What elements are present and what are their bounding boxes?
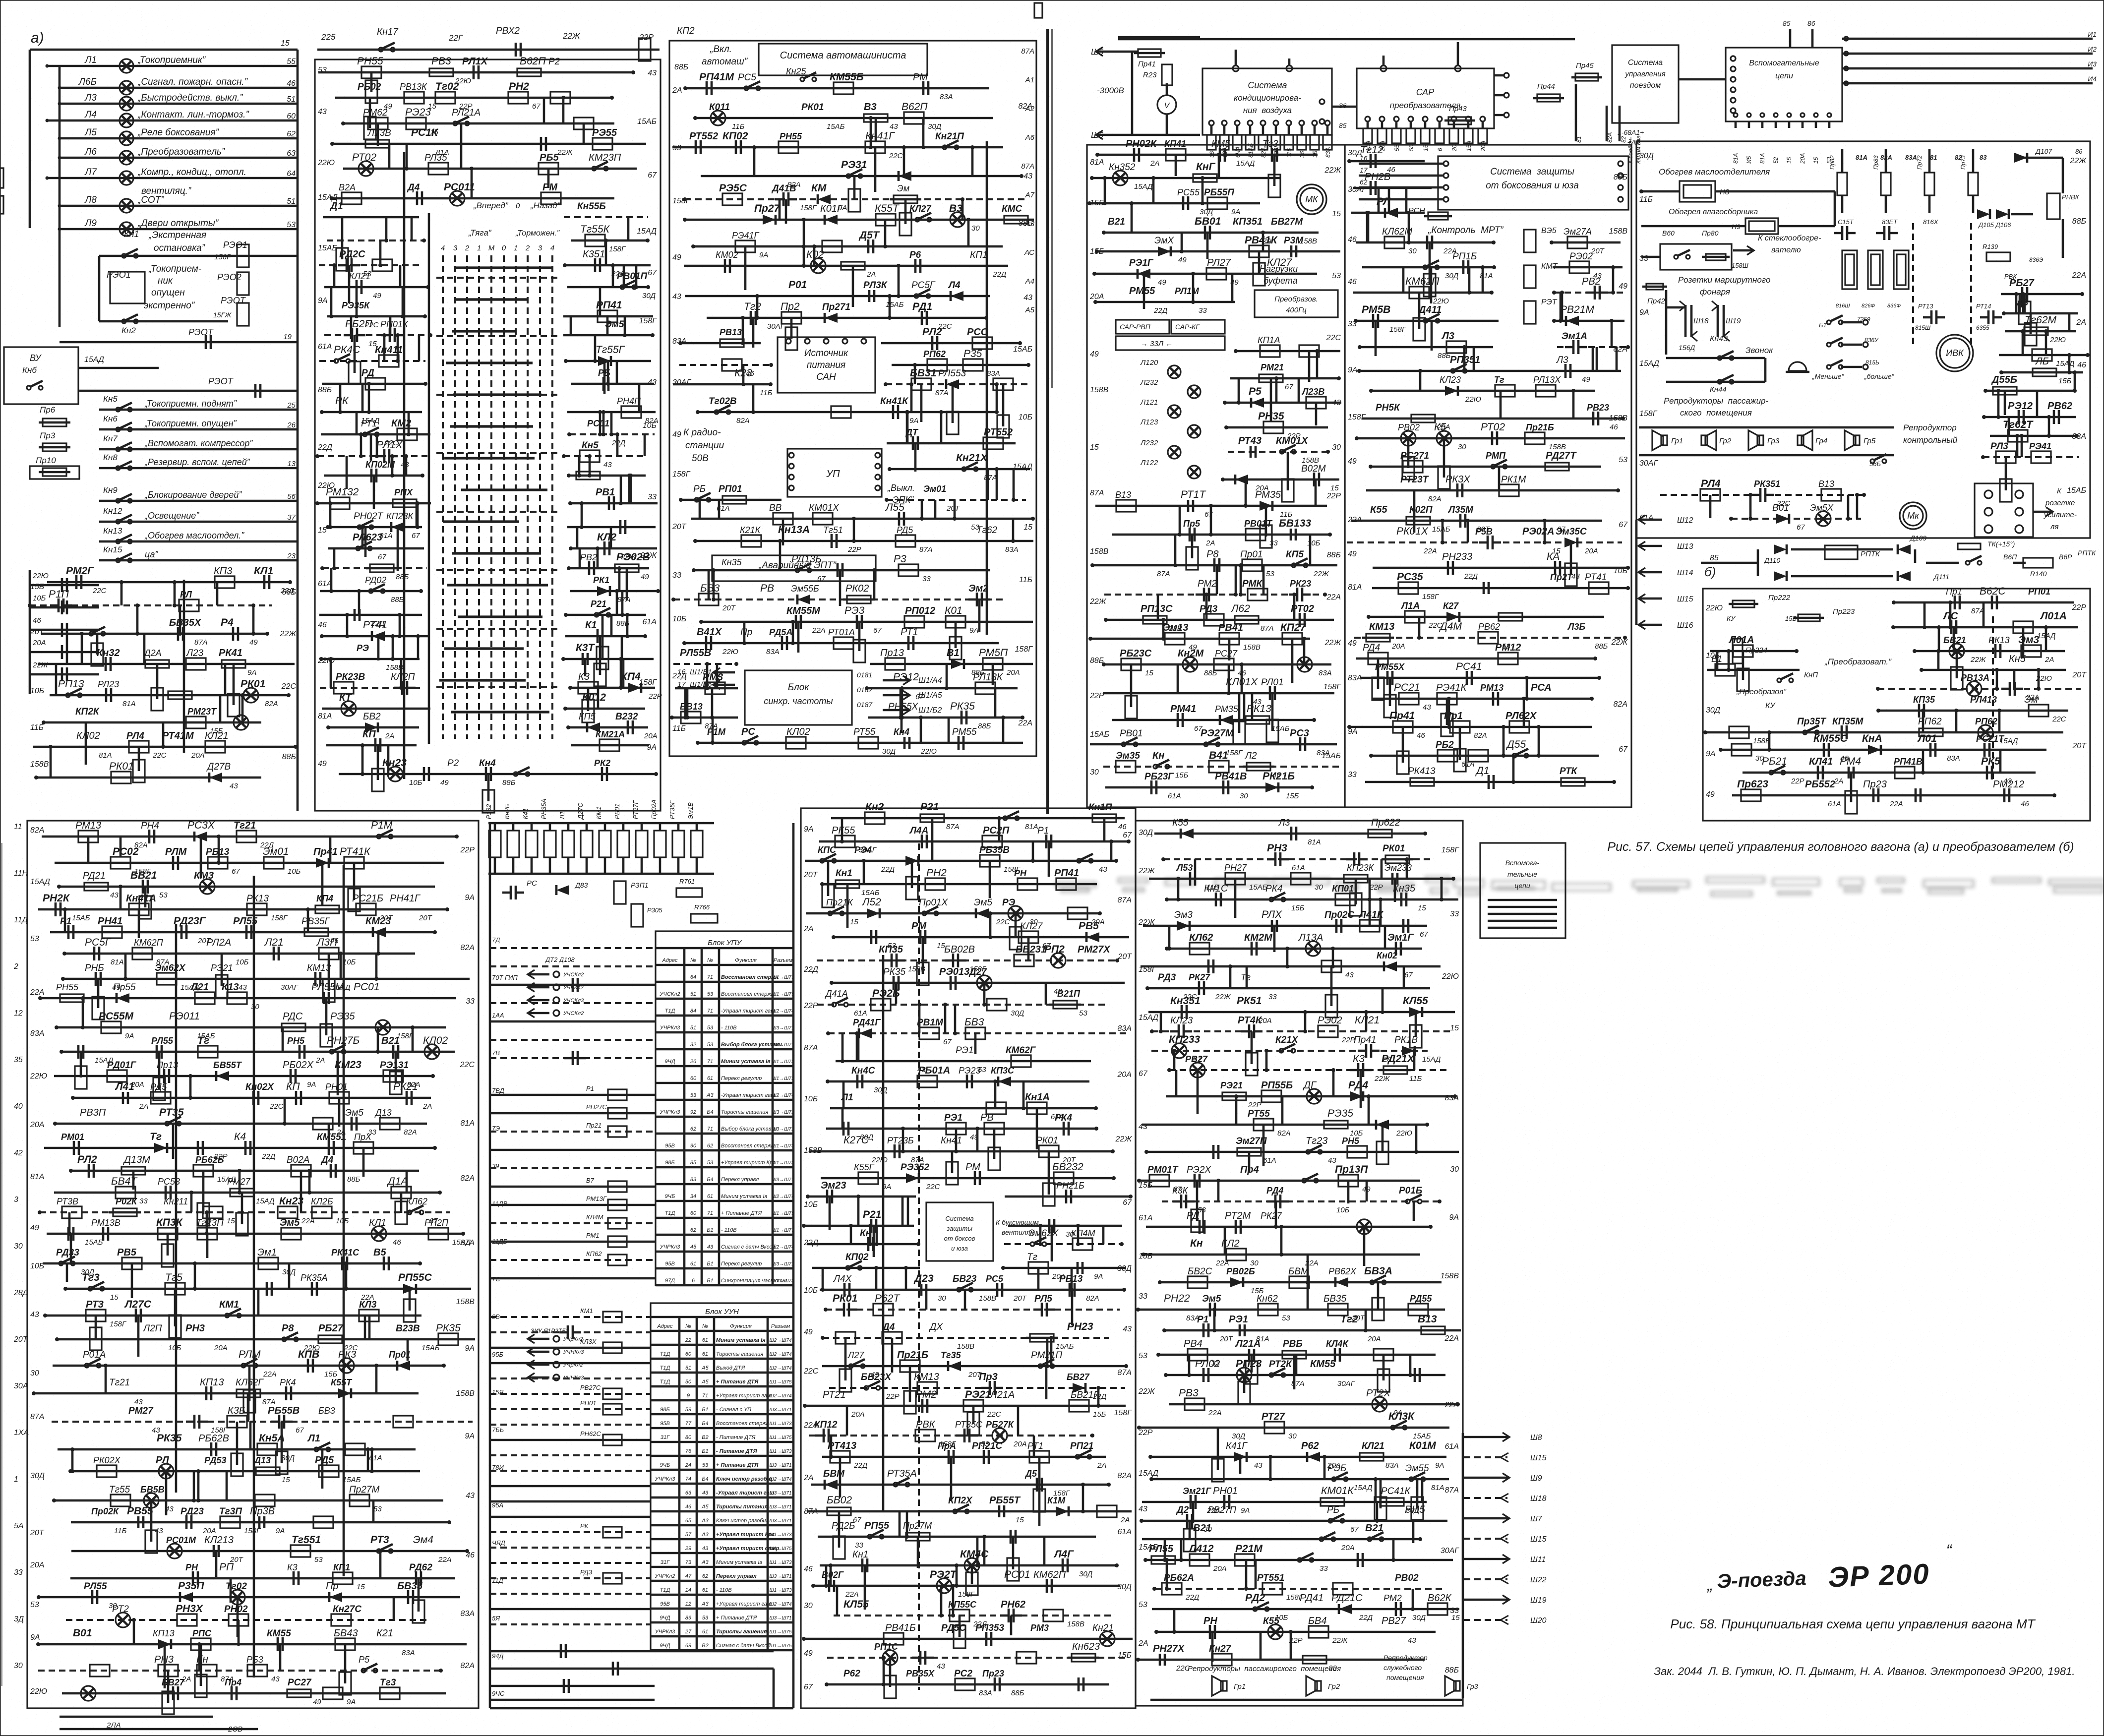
svg-text:Тг21: Тг21: [234, 820, 256, 831]
svg-text:22Д: 22Д: [317, 443, 332, 452]
svg-text:РК4: РК4: [1055, 1113, 1072, 1123]
svg-text:БВ35: БВ35: [1323, 1294, 1347, 1304]
svg-text:2А: 2А: [1150, 159, 1159, 168]
svg-text:30АГ: 30АГ: [672, 378, 691, 387]
svg-text:9А: 9А: [969, 626, 978, 635]
svg-text:РП1С: РП1С: [874, 1642, 899, 1652]
svg-text:РТ55: РТ55: [853, 727, 876, 737]
svg-text:РЛ3: РЛ3: [1990, 441, 2008, 452]
svg-text:81А: 81А: [1025, 823, 1038, 831]
svg-text:15АД: 15АД: [1134, 182, 1153, 191]
svg-text:Пр6: Пр6: [40, 405, 56, 415]
svg-text:Р01А: Р01А: [83, 1350, 106, 1360]
svg-text:УЧРКл3: УЧРКл3: [655, 1629, 675, 1635]
svg-text:Эм4: Эм4: [413, 1534, 433, 1546]
svg-text:0187: 0187: [857, 701, 873, 709]
svg-text:„Компр., кондиц., отопл.: „Компр., кондиц., отопл.: [137, 167, 246, 178]
svg-text:РВ4: РВ4: [1184, 1338, 1202, 1349]
svg-text:20А: 20А: [1391, 642, 1405, 651]
svg-text:Д27: Д27: [968, 967, 987, 977]
svg-text:Л5: Л5: [84, 127, 97, 138]
svg-text:158В: 158В: [1243, 643, 1261, 652]
svg-text:15АБ: 15АБ: [1090, 730, 1109, 739]
svg-text:КЛ62: КЛ62: [406, 1197, 427, 1206]
svg-text:60: 60: [685, 1351, 692, 1357]
svg-text:20Т: 20Т: [30, 1529, 45, 1537]
svg-text:Л1: Л1: [84, 55, 97, 65]
svg-text:РС55М: РС55М: [99, 1011, 134, 1022]
svg-text:Эм5: Эм5: [1202, 1294, 1221, 1304]
svg-text:1ХА: 1ХА: [14, 1429, 29, 1437]
svg-text:Л13А: Л13А: [1298, 932, 1323, 943]
svg-text:РК01: РК01: [109, 761, 134, 772]
svg-text:К01М: К01М: [1409, 1440, 1436, 1451]
svg-text:В62П: В62П: [520, 56, 546, 67]
svg-text:РЭ02: РЭ02: [1569, 251, 1593, 262]
svg-text:88Б: 88Б: [1011, 1689, 1024, 1697]
svg-text:83А: 83А: [987, 369, 1000, 378]
svg-text:УЧРКл3: УЧРКл3: [660, 1244, 680, 1250]
svg-text:К3: К3: [578, 671, 590, 682]
svg-text:Кн41А: Кн41А: [126, 893, 156, 904]
svg-text:+Управл тирист гаш: +Управл тирист гаш: [716, 1601, 772, 1607]
svg-text:53: 53: [314, 1556, 323, 1564]
svg-text:55: 55: [287, 58, 296, 66]
svg-text:22С: 22С: [996, 918, 1010, 926]
svg-text:49: 49: [249, 638, 258, 647]
svg-text:Ш15: Ш15: [1677, 595, 1693, 603]
svg-text:20Т: 20Т: [13, 1335, 28, 1344]
svg-text:20А: 20А: [1213, 1564, 1227, 1573]
svg-text:экстренно”: экстренно”: [144, 300, 195, 311]
svg-text:ВУ: ВУ: [30, 353, 42, 363]
svg-text:РМ2: РМ2: [1383, 1593, 1402, 1603]
svg-text:РК4: РК4: [1265, 884, 1282, 894]
svg-text:Л3Б: Л3Б: [1567, 622, 1585, 632]
svg-text:Кн: Кн: [1152, 750, 1164, 761]
svg-text:70Т ГИП: 70Т ГИП: [492, 974, 518, 981]
svg-text:Пр73: Пр73: [1960, 155, 1967, 170]
svg-text:РТ3В: РТ3В: [57, 1197, 78, 1206]
svg-text:Л4Г: Л4Г: [1053, 1549, 1074, 1560]
svg-text:КЛ23: КЛ23: [1440, 375, 1461, 385]
svg-text:РК27: РК27: [1261, 1211, 1282, 1221]
svg-text:розетке: розетке: [2045, 499, 2075, 507]
svg-text:РС41: РС41: [1456, 661, 1482, 672]
svg-text:Кн2Б: Кн2Б: [503, 804, 511, 819]
svg-text:Тг12: Тг12: [1360, 144, 1383, 156]
svg-text:82А: 82А: [1118, 1472, 1132, 1480]
svg-text:Мк: Мк: [1907, 511, 1920, 521]
svg-text:РМ: РМ: [913, 72, 928, 83]
svg-text:РЭ35: РЭ35: [1327, 1108, 1353, 1119]
svg-text:ПрХ: ПрХ: [354, 1132, 372, 1142]
svg-text:15ГЖ: 15ГЖ: [213, 311, 232, 319]
svg-text:РК3Х: РК3Х: [1445, 474, 1470, 485]
svg-text:Пр82: Пр82: [1829, 155, 1836, 170]
svg-text:Ш3→Ш71: Ш3→Ш71: [769, 1616, 791, 1621]
svg-text:Т1Д: Т1Д: [660, 1365, 670, 1371]
svg-text:158В: 158В: [1441, 1272, 1459, 1280]
svg-text:РН02Т: РН02Т: [354, 511, 384, 522]
svg-text:А5: А5: [701, 1504, 709, 1510]
svg-text:87А: 87А: [617, 596, 631, 604]
svg-text:РП: РП: [219, 1561, 234, 1573]
svg-text:РВ13К: РВ13К: [400, 82, 427, 92]
svg-text:Тг3: Тг3: [380, 1677, 396, 1688]
svg-text:Кн352: Кн352: [1109, 162, 1136, 173]
svg-text:10Б: 10Б: [236, 958, 249, 966]
svg-text:РТ552: РТ552: [984, 427, 1013, 438]
svg-text:73: 73: [685, 1559, 692, 1565]
svg-text:156Д: 156Д: [1679, 344, 1695, 352]
svg-text:К55Т: К55Т: [875, 203, 900, 214]
svg-text:62: 62: [690, 1126, 696, 1132]
svg-text:61: 61: [702, 1629, 708, 1635]
svg-text:УЧСКл2: УЧСКл2: [563, 972, 584, 978]
svg-text:РС55: РС55: [1177, 187, 1200, 197]
svg-text:49: 49: [30, 1224, 39, 1232]
svg-text:+Управл тирист Крс: +Управл тирист Крс: [716, 1532, 775, 1538]
svg-text:Система автомашиниста: Система автомашиниста: [780, 50, 906, 61]
svg-text:87А: 87А: [30, 1413, 44, 1421]
svg-text:РД: РД: [361, 368, 374, 378]
svg-text:95В: 95В: [665, 1261, 675, 1267]
svg-text:КПС: КПС: [818, 845, 837, 855]
svg-text:6355: 6355: [1976, 324, 1989, 331]
svg-text:82А: 82А: [1428, 495, 1442, 503]
svg-text:Эм01: Эм01: [263, 846, 289, 857]
svg-text:22Ж: 22Ж: [1115, 1135, 1133, 1143]
svg-text:РД4: РД4: [1266, 1186, 1283, 1196]
svg-text:Эм3: Эм3: [2018, 634, 2040, 646]
svg-text:67: 67: [1404, 971, 1413, 979]
svg-text:20Т: 20Т: [803, 871, 818, 879]
svg-text:Репродукторы пассажир-: Репродукторы пассажир-: [1664, 396, 1768, 406]
svg-text:74: 74: [685, 1476, 691, 1482]
svg-text:УЧРКл2: УЧРКл2: [655, 1573, 675, 1579]
svg-text:РН3: РН3: [1267, 842, 1287, 854]
svg-text:Обогрев влагосборника: Обогрев влагосборника: [1669, 208, 1758, 216]
svg-text:РБ01А: РБ01А: [918, 1065, 950, 1076]
svg-text:РЭ41К: РЭ41К: [1436, 682, 1467, 693]
svg-text:Р2: Р2: [447, 758, 459, 769]
svg-text:Р6: Р6: [909, 250, 921, 260]
svg-text:Ш14: Ш14: [1677, 569, 1693, 577]
svg-text:Л01А: Л01А: [2040, 610, 2067, 622]
svg-text:9: 9: [687, 1393, 690, 1399]
svg-text:РБ552: РБ552: [1805, 779, 1835, 790]
svg-text:РВ1М: РВ1М: [917, 1018, 944, 1028]
svg-text:33: 33: [922, 575, 931, 583]
svg-text:КМ01Х: КМ01Х: [1276, 435, 1309, 446]
svg-text:Тиристы гашения: Тиристы гашения: [716, 1351, 763, 1357]
svg-text:РС5: РС5: [986, 1274, 1004, 1284]
svg-text:15АД: 15АД: [256, 1197, 275, 1205]
svg-text:9ЧД: 9ЧД: [664, 1059, 675, 1065]
svg-text:КЛ4М: КЛ4М: [586, 1213, 603, 1221]
svg-text:Д23: Д23: [913, 1273, 934, 1284]
svg-text:Перекл регулир: Перекл регулир: [721, 1261, 762, 1267]
svg-text:49: 49: [1348, 639, 1357, 648]
svg-text:9А: 9А: [1449, 1213, 1459, 1222]
svg-text:Пр21: Пр21: [586, 1122, 601, 1129]
svg-text:Кн8: Кн8: [103, 453, 118, 462]
svg-text:49: 49: [318, 760, 327, 768]
svg-text:2А: 2А: [803, 1474, 814, 1482]
svg-text:88Б: 88Б: [502, 778, 516, 787]
svg-text:РТ35С: РТ35С: [955, 1420, 983, 1430]
svg-text:49: 49: [440, 778, 449, 787]
svg-text:Тг: Тг: [1027, 1252, 1037, 1262]
svg-text:2: 2: [13, 962, 18, 971]
svg-text:РВ13А: РВ13А: [1961, 673, 1989, 683]
svg-text:2: 2: [465, 244, 470, 252]
svg-text:83: 83: [690, 1177, 697, 1183]
svg-text:КЛ21: КЛ21: [349, 271, 370, 281]
svg-text:46: 46: [2077, 361, 2086, 369]
svg-text:РПТК: РПТК: [2078, 549, 2096, 557]
svg-text:22А: 22А: [1444, 1334, 1459, 1343]
svg-text:Ш1→Ш75: Ш1→Ш75: [769, 1643, 792, 1649]
svg-text:Кн15: Кн15: [103, 545, 122, 554]
svg-text:Р21: Р21: [863, 1209, 881, 1220]
svg-text:83А: 83А: [461, 1610, 475, 1618]
svg-text:46: 46: [393, 1238, 401, 1247]
svg-text:Гр3: Гр3: [1767, 437, 1780, 445]
svg-text:33: 33: [672, 571, 681, 580]
svg-text:РС02: РС02: [113, 846, 139, 857]
svg-text:КЛ1: КЛ1: [254, 565, 273, 577]
svg-text:9ЧД: 9ЧД: [660, 1643, 670, 1649]
svg-text:22А: 22А: [803, 1421, 818, 1430]
svg-text:158В: 158В: [957, 1342, 974, 1351]
svg-text:10Б: 10Б: [804, 1200, 818, 1209]
svg-text:ТК(+15°): ТК(+15°): [1987, 540, 2015, 548]
svg-text:РВ41В: РВ41В: [1215, 771, 1247, 782]
svg-text:49: 49: [672, 430, 681, 439]
svg-text:4: 4: [441, 244, 445, 252]
svg-text:1: 1: [14, 1475, 18, 1484]
svg-text:РН02: РН02: [224, 1604, 248, 1615]
svg-text:42: 42: [14, 1149, 23, 1157]
svg-text:РМП: РМП: [1486, 451, 1506, 461]
svg-text:Р35П: Р35П: [178, 1580, 204, 1592]
svg-text:Тиристы гашения: Тиристы гашения: [721, 1109, 768, 1115]
svg-text:Ш18: Ш18: [1530, 1495, 1547, 1503]
svg-text:15АБ: 15АБ: [1432, 525, 1450, 534]
svg-text:РЛ02: РЛ02: [1195, 1358, 1220, 1370]
svg-text:81А: 81А: [1431, 1484, 1444, 1492]
svg-text:- Сигнал с УП: - Сигнал с УП: [716, 1407, 751, 1413]
svg-text:Тг21: Тг21: [109, 1377, 130, 1388]
svg-text:Л2П: Л2П: [142, 1323, 162, 1334]
svg-text:Пр21Б: Пр21Б: [897, 1350, 928, 1361]
svg-text:КП3К: КП3К: [156, 1217, 183, 1228]
svg-text:Ключ истор разобщ: Ключ истор разобщ: [716, 1476, 772, 1482]
svg-text:83А: 83А: [1118, 1024, 1132, 1033]
svg-text:Выход ДТЯ: Выход ДТЯ: [716, 1365, 745, 1371]
svg-text:4: 4: [550, 244, 554, 252]
svg-text:Система: Система: [1248, 80, 1287, 90]
svg-text:46: 46: [1417, 731, 1425, 740]
svg-text:Ш1→Ш75: Ш1→Ш75: [772, 992, 794, 997]
svg-text:РБ: РБ: [693, 484, 706, 494]
svg-text:9А: 9А: [247, 668, 256, 677]
svg-text:РС41К: РС41К: [1381, 1486, 1411, 1497]
svg-text:22Р: 22Р: [648, 692, 662, 701]
svg-text:Л121: Л121: [1140, 398, 1158, 407]
svg-text:КМ2М: КМ2М: [1244, 932, 1273, 943]
svg-text:РН21Б: РН21Б: [1056, 1181, 1084, 1191]
svg-text:Разъем: Разъем: [774, 958, 793, 963]
svg-text:83А: 83А: [1905, 154, 1917, 161]
svg-text:Р62Т: Р62Т: [875, 1293, 901, 1304]
svg-text:15АД: 15АД: [1639, 359, 1659, 368]
svg-text:РД5: РД5: [315, 1455, 334, 1466]
svg-text:БВМ: БВМ: [1288, 1266, 1309, 1277]
svg-text:Д110: Д110: [1763, 556, 1780, 564]
svg-text:Эм5: Эм5: [974, 898, 992, 908]
svg-text:6ЧА: 6ЧА: [1234, 146, 1241, 158]
svg-text:15АД: 15АД: [1139, 1469, 1158, 1478]
svg-text:РД3: РД3: [1158, 972, 1176, 983]
svg-text:50: 50: [685, 1379, 692, 1385]
svg-text:РБ62Б: РБ62Б: [195, 1155, 224, 1165]
svg-text:РД21С: РД21С: [1331, 1593, 1363, 1604]
svg-text:Тг02: Тг02: [435, 81, 459, 92]
svg-text:РЛ2: РЛ2: [922, 326, 942, 338]
svg-text:РД5С: РД5С: [941, 1623, 966, 1633]
svg-text:Тг23: Тг23: [1306, 1136, 1327, 1146]
svg-text:Т1Д: Т1Д: [660, 1587, 670, 1593]
svg-text:33: 33: [1269, 539, 1278, 547]
svg-text:РД5А: РД5А: [769, 627, 792, 637]
svg-text:30Д: 30Д: [281, 1454, 295, 1462]
svg-text:22Ю: 22Ю: [2049, 336, 2066, 344]
svg-text:-3000В: -3000В: [1097, 86, 1124, 95]
svg-text:„Реле боксования”: „Реле боксования”: [137, 127, 220, 138]
svg-text:9А: 9А: [465, 1344, 475, 1353]
svg-text:61: 61: [702, 1351, 708, 1357]
svg-text:„Тяга”: „Тяга”: [468, 228, 492, 238]
svg-text:0: 0: [516, 202, 520, 210]
svg-text:К4: К4: [234, 1131, 246, 1142]
svg-text:„Токоприемн. опущен”: „Токоприемн. опущен”: [144, 419, 237, 428]
svg-text:35: 35: [14, 1056, 23, 1064]
svg-text:РМ01Т: РМ01Т: [1147, 1165, 1179, 1175]
svg-text:Л3: Л3: [1441, 331, 1454, 342]
svg-text:Репродуктор: Репродуктор: [1903, 423, 1957, 432]
svg-text:Вспомога-: Вспомога-: [1505, 859, 1540, 867]
svg-text:№: №: [685, 1323, 691, 1329]
svg-text:9А: 9А: [318, 297, 328, 305]
svg-text:Ш3→Ш71: Ш3→Ш71: [772, 1127, 794, 1132]
svg-text:КЛ21: КЛ21: [205, 730, 229, 741]
svg-text:РВ: РВ: [980, 1112, 994, 1123]
svg-text:Р1: Р1: [1037, 826, 1049, 836]
svg-text:Д27В: Д27В: [206, 762, 231, 772]
svg-text:Эм55: Эм55: [1405, 1463, 1429, 1474]
svg-text:15АБ: 15АБ: [861, 889, 880, 897]
svg-text:Тг35: Тг35: [941, 1350, 962, 1360]
svg-text:Л232: Л232: [1140, 439, 1158, 447]
svg-text:КП: КП: [286, 1081, 300, 1092]
svg-text:Гр4: Гр4: [1815, 437, 1827, 445]
svg-text:РН: РН: [185, 1562, 198, 1572]
svg-text:15Б: 15Б: [1093, 1410, 1106, 1419]
svg-text:83ЕТ: 83ЕТ: [1882, 218, 1898, 226]
svg-text:15: 15: [1090, 443, 1099, 452]
svg-text:Р35: Р35: [963, 348, 982, 359]
svg-text:49: 49: [672, 253, 681, 262]
svg-text:Разъем: Разъем: [771, 1323, 790, 1329]
svg-text:12: 12: [14, 1009, 23, 1018]
svg-text:В62П: В62П: [902, 101, 928, 113]
svg-text:56: 56: [287, 492, 296, 501]
svg-text:БВ3: БВ3: [964, 1017, 984, 1028]
svg-text:РК413: РК413: [1408, 766, 1436, 777]
svg-text:РТ552: РТ552: [689, 131, 718, 142]
svg-text:50В: 50В: [692, 453, 709, 464]
svg-text:РД4: РД4: [1348, 1079, 1368, 1091]
svg-text:20А: 20А: [1367, 1335, 1381, 1343]
svg-text:61: 61: [707, 1076, 713, 1081]
svg-text:43: 43: [890, 122, 898, 131]
svg-text:„Обогрев маслоотдел.”: „Обогрев маслоотдел.”: [144, 531, 244, 540]
svg-text:РН22: РН22: [1164, 1293, 1190, 1304]
svg-text:9А: 9А: [30, 1633, 40, 1642]
svg-text:КМ13: КМ13: [1369, 621, 1394, 632]
svg-text:РВ2: РВ2: [580, 552, 597, 562]
svg-text:15АБ: 15АБ: [1013, 345, 1032, 354]
svg-text:КА: КА: [1547, 551, 1560, 562]
svg-text:43: 43: [1254, 1461, 1262, 1470]
svg-text:Тг55К: Тг55К: [580, 224, 610, 235]
svg-text:КП13: КП13: [200, 1377, 224, 1388]
svg-text:29: 29: [685, 1546, 691, 1552]
svg-text:Р8: Р8: [282, 1323, 294, 1334]
svg-text:РВ01Т: РВ01Т: [1244, 519, 1273, 529]
svg-text:РК13: РК13: [246, 894, 269, 904]
svg-text:РНБ: РНБ: [85, 963, 104, 973]
svg-text:Д4: Д4: [320, 1155, 334, 1165]
svg-text:22С: 22С: [269, 1102, 284, 1111]
svg-text:52: 52: [1772, 157, 1779, 164]
svg-text:60: 60: [690, 1076, 697, 1081]
svg-text:Р3М: Р3М: [1284, 236, 1304, 246]
svg-text:9ЧС: 9ЧС: [492, 1690, 505, 1697]
svg-text:РН02К: РН02К: [1126, 138, 1157, 149]
svg-text:РЛ553: РЛ553: [938, 368, 966, 379]
svg-text:Р5В: Р5В: [1475, 527, 1493, 537]
svg-text:КЛ2Б: КЛ2Б: [311, 1197, 333, 1206]
svg-text:К1: К1: [585, 620, 597, 631]
svg-text:РЛ: РЛ: [180, 590, 192, 599]
svg-text:15АБ: 15АБ: [318, 244, 337, 252]
svg-text:20Т: 20Т: [722, 604, 736, 612]
svg-text:РК: РК: [335, 395, 349, 407]
svg-text:Р3: Р3: [894, 553, 906, 565]
svg-text:+ Питание ДТЯ: + Питание ДТЯ: [716, 1615, 757, 1621]
svg-text:ПрА: ПрА: [938, 1441, 956, 1451]
svg-text:22А: 22А: [263, 1370, 277, 1378]
svg-text:49: 49: [1348, 457, 1357, 466]
svg-text:Тг51: Тг51: [823, 525, 843, 535]
svg-text:15Б: 15Б: [1286, 792, 1299, 800]
svg-text:15АД: 15АД: [637, 227, 657, 236]
svg-text:15АБ: 15АБ: [85, 1238, 103, 1247]
